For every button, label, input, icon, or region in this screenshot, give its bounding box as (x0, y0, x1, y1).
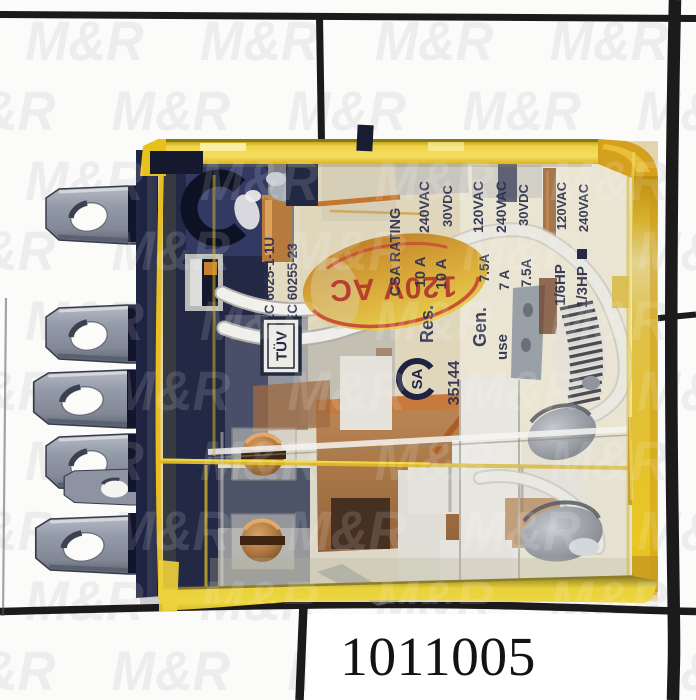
svg-text:M&R: M&R (25, 570, 144, 632)
svg-text:M&R: M&R (550, 430, 669, 492)
svg-text:M&R: M&R (287, 220, 406, 282)
svg-text:M&R: M&R (0, 80, 55, 142)
svg-text:M&R: M&R (287, 500, 406, 562)
svg-text:M&R: M&R (112, 640, 231, 700)
svg-text:M&R: M&R (287, 80, 406, 142)
svg-text:M&R: M&R (112, 80, 231, 142)
svg-text:1011005: 1011005 (340, 627, 536, 688)
svg-text:10 A: 10 A (433, 258, 450, 289)
svg-text:10 A: 10 A (412, 256, 429, 287)
svg-text:M&R: M&R (462, 360, 581, 422)
svg-text:M&R: M&R (375, 150, 494, 212)
svg-text:M&R: M&R (287, 360, 406, 422)
svg-text:M&R: M&R (550, 290, 669, 352)
svg-text:M&R: M&R (375, 430, 494, 492)
svg-text:use: use (494, 334, 511, 360)
svg-text:M&R: M&R (112, 220, 231, 282)
svg-text:M&R: M&R (462, 500, 581, 562)
svg-text:M&R: M&R (200, 430, 319, 492)
svg-text:M&R: M&R (25, 10, 144, 72)
svg-text:M&R: M&R (462, 220, 581, 282)
svg-text:M&R: M&R (550, 150, 669, 212)
svg-text:M&R: M&R (462, 80, 581, 142)
svg-text:M&R: M&R (112, 360, 231, 422)
svg-text:M&R: M&R (200, 150, 319, 212)
svg-text:M&R: M&R (112, 500, 231, 562)
svg-text:M&R: M&R (200, 290, 319, 352)
svg-text:35144: 35144 (446, 361, 463, 406)
svg-text:SA: SA (409, 368, 426, 389)
svg-text:M&R: M&R (0, 640, 55, 700)
svg-text:M&R: M&R (375, 290, 494, 352)
